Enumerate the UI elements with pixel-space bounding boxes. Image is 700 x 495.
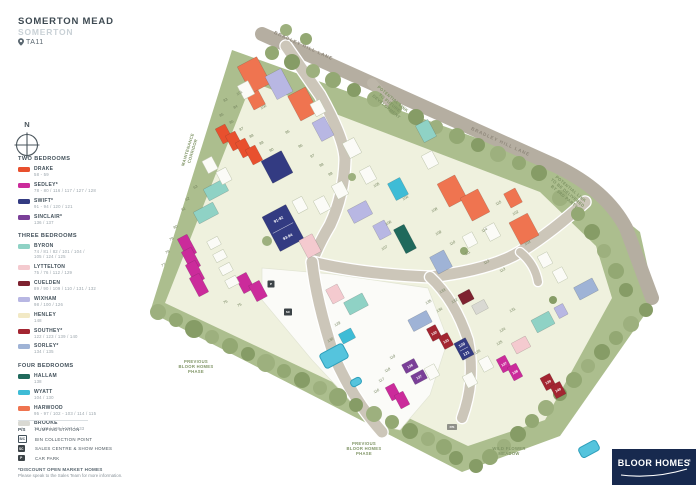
tree bbox=[385, 415, 399, 429]
tree bbox=[329, 388, 347, 406]
tree bbox=[294, 372, 310, 388]
p-icon: P bbox=[18, 455, 30, 462]
amenity-pumping-station: P/SPUMPING STATION bbox=[18, 426, 138, 433]
tree bbox=[449, 451, 463, 465]
house-type-plots: 138 bbox=[34, 379, 57, 384]
development-title: SOMERTON MEAD bbox=[18, 16, 114, 27]
house-type-swatch bbox=[18, 297, 30, 302]
house-type-name: SINCLAIR* bbox=[34, 214, 62, 220]
house-type-name: WYATT bbox=[34, 389, 54, 395]
tree bbox=[169, 313, 183, 327]
house-type-plots: 89 / 90 / 109 / 110 / 131 / 132 bbox=[34, 286, 96, 291]
tree bbox=[421, 432, 435, 446]
tree bbox=[525, 414, 539, 428]
house-type-swatch bbox=[18, 406, 30, 411]
legend-item-henley: HENLEY148 bbox=[18, 312, 136, 323]
house-type-swatch bbox=[18, 390, 30, 395]
legend-sections: TWO BEDROOMSDRAKE58 - 59SEDLEY*78 - 80 /… bbox=[18, 156, 136, 436]
tree bbox=[469, 459, 483, 473]
legend-item-wixham: WIXHAM98 / 100 / 126 bbox=[18, 296, 136, 307]
legend-item-sedley: SEDLEY*78 - 80 / 116 / 117 / 127 / 128 bbox=[18, 182, 136, 193]
tree bbox=[566, 372, 582, 388]
tree bbox=[512, 156, 526, 170]
map-label: PREVIOUSBLOOR HOMESPHASE bbox=[179, 359, 214, 374]
tree bbox=[581, 359, 595, 373]
house-type-swatch bbox=[18, 244, 30, 249]
legend-section-heading: TWO BEDROOMS bbox=[18, 156, 136, 162]
pond-shape bbox=[578, 439, 601, 458]
marker-label: P bbox=[270, 282, 272, 286]
postcode-row: TA11 bbox=[18, 38, 44, 46]
house-type-swatch bbox=[18, 313, 30, 318]
footnote-sales-team: Please speak to the Sales Team for more … bbox=[18, 473, 122, 478]
amenity-bin-collection-point: B/CBIN COLLECTION POINT bbox=[18, 436, 138, 443]
tree bbox=[619, 283, 633, 297]
legend-section-heading: THREE BEDROOMS bbox=[18, 233, 136, 239]
tree bbox=[265, 46, 279, 60]
house-type-swatch bbox=[18, 265, 30, 270]
legend-item-sorley: SORLEY*134 / 135 bbox=[18, 343, 136, 354]
house-type-plots: 98 / 100 / 126 bbox=[34, 302, 63, 307]
site-plan-page: 91-9293-94122123120121136137127128139140… bbox=[0, 0, 700, 495]
tree bbox=[510, 426, 526, 442]
house-type-swatch bbox=[18, 167, 30, 172]
legend-item-lyttelton: LYTTELTON75 / 76 / 112 / 129 bbox=[18, 264, 136, 275]
amenity-label: SALES CENTRE & SHOW HOMES bbox=[35, 446, 112, 451]
tree bbox=[284, 54, 300, 70]
house-type-swatch bbox=[18, 199, 30, 204]
footnote-discount: *DISCOUNT OPEN MARKET HOMES bbox=[18, 467, 103, 472]
amenity-legend: P/SPUMPING STATIONB/CBIN COLLECTION POIN… bbox=[18, 426, 138, 464]
tree bbox=[571, 207, 585, 221]
tree bbox=[306, 64, 320, 78]
legend-item-sinclair: SINCLAIR*136 / 137 bbox=[18, 214, 136, 225]
amenity-car-park: PCAR PARK bbox=[18, 455, 138, 462]
legend-item-wyatt: WYATT104 / 130 bbox=[18, 389, 136, 400]
amenity-sales-centre-show-homes: SCSALES CENTRE & SHOW HOMES bbox=[18, 445, 138, 452]
postcode-text: TA11 bbox=[26, 39, 44, 46]
tree bbox=[402, 423, 418, 439]
map-label-text: PREVIOUSBLOOR HOMESPHASE bbox=[347, 441, 382, 456]
house-type-plots: 105 / 124 / 125 bbox=[34, 254, 85, 259]
tree bbox=[449, 128, 465, 144]
registered-mark: ® bbox=[688, 458, 691, 463]
tree bbox=[222, 338, 238, 354]
house-type-plots: 78 - 80 / 116 / 117 / 127 / 128 bbox=[34, 188, 96, 193]
info-panel: SOMERTON MEAD SOMERTON TA11 N TWO BEDROO… bbox=[0, 0, 150, 495]
legend-item-harwood: HARWOOD95 - 97 / 102 - 103 / 114 / 115 bbox=[18, 405, 136, 416]
tree bbox=[597, 244, 611, 258]
amenity-label: BIN COLLECTION POINT bbox=[35, 437, 92, 442]
tree bbox=[347, 83, 361, 97]
tree bbox=[584, 224, 600, 240]
house-type-swatch bbox=[18, 281, 30, 286]
tree bbox=[185, 320, 203, 338]
tree bbox=[490, 146, 506, 162]
tree bbox=[639, 303, 653, 317]
legend-item-southey: SOUTHEY*122 / 123 / 139 / 140 bbox=[18, 328, 136, 339]
tree bbox=[257, 354, 275, 372]
bloor-homes-logo-text: BLOOR HOMES bbox=[618, 458, 690, 468]
attenuation-pond bbox=[578, 439, 601, 458]
house-type-plots: 75 / 76 / 112 / 129 bbox=[34, 270, 72, 275]
tree bbox=[205, 330, 219, 344]
sales-centre-marker: SC bbox=[284, 309, 292, 316]
compass-north-label: N bbox=[24, 120, 29, 129]
tree bbox=[549, 296, 557, 304]
marker-label: P/S bbox=[450, 425, 455, 429]
tree bbox=[482, 449, 498, 465]
house-type-plots: 104 / 130 bbox=[34, 395, 54, 400]
tree bbox=[262, 236, 272, 246]
legend-divider bbox=[18, 420, 88, 421]
house-type-name: HALLAM bbox=[34, 373, 57, 379]
house-type-plots: 58 - 59 bbox=[34, 172, 53, 177]
tree bbox=[325, 72, 341, 88]
location-pin-icon bbox=[18, 38, 24, 46]
tree bbox=[349, 398, 363, 412]
pumping-station-marker: P/S bbox=[447, 424, 457, 430]
legend-item-byron: BYRON74 / 81 / 82 / 101 / 104 /105 / 124… bbox=[18, 243, 136, 260]
legend-item-hallam: HALLAM138 bbox=[18, 373, 136, 384]
house-type-plots: 95 - 97 / 102 - 103 / 114 / 115 bbox=[34, 411, 96, 416]
house-type-plots: 134 / 135 bbox=[34, 349, 59, 354]
map-label-text: PREVIOUSBLOOR HOMESPHASE bbox=[179, 359, 214, 374]
house-type-swatch bbox=[18, 215, 30, 220]
house-type-swatch bbox=[18, 183, 30, 188]
legend-item-swift: SWIFT*91 - 94 / 120 / 121 bbox=[18, 198, 136, 209]
tree bbox=[313, 381, 327, 395]
tree bbox=[150, 304, 166, 320]
sc-icon: SC bbox=[18, 445, 30, 452]
house-type-plots: 91 - 94 / 120 / 121 bbox=[34, 204, 73, 209]
tree bbox=[608, 263, 624, 279]
ps-icon: P/S bbox=[18, 427, 30, 432]
house-type-plots: 148 bbox=[34, 318, 56, 323]
amenity-label: PUMPING STATION bbox=[35, 427, 80, 432]
bloor-homes-logo: BLOOR HOMES ® bbox=[612, 449, 696, 485]
car-park-marker: P bbox=[268, 281, 275, 288]
legend-item-drake: DRAKE58 - 59 bbox=[18, 166, 136, 177]
house-type-swatch bbox=[18, 344, 30, 349]
tree bbox=[531, 165, 547, 181]
house-type-plots: 122 / 123 / 139 / 140 bbox=[34, 334, 78, 339]
tree bbox=[609, 331, 623, 345]
tree bbox=[594, 344, 610, 360]
legend-section-heading: FOUR BEDROOMS bbox=[18, 363, 136, 369]
tree bbox=[623, 316, 639, 332]
house-type-swatch bbox=[18, 329, 30, 334]
amenity-label: CAR PARK bbox=[35, 456, 60, 461]
logo-swoosh bbox=[619, 468, 689, 477]
tree bbox=[471, 138, 485, 152]
house-type-swatch bbox=[18, 374, 30, 379]
tree bbox=[348, 173, 356, 181]
tree bbox=[277, 364, 291, 378]
house-type-name: HENLEY bbox=[34, 312, 56, 318]
tree bbox=[538, 400, 554, 416]
map-label: PREVIOUSBLOOR HOMESPHASE bbox=[347, 441, 382, 456]
bc-icon: B/C bbox=[18, 435, 30, 444]
tree bbox=[366, 406, 382, 422]
tree bbox=[436, 439, 452, 455]
legend-item-cuelden: CUELDEN89 / 90 / 109 / 110 / 131 / 132 bbox=[18, 280, 136, 291]
house-type-plots: 136 / 137 bbox=[34, 220, 62, 225]
tree bbox=[241, 347, 255, 361]
development-subtitle: SOMERTON bbox=[18, 27, 73, 37]
